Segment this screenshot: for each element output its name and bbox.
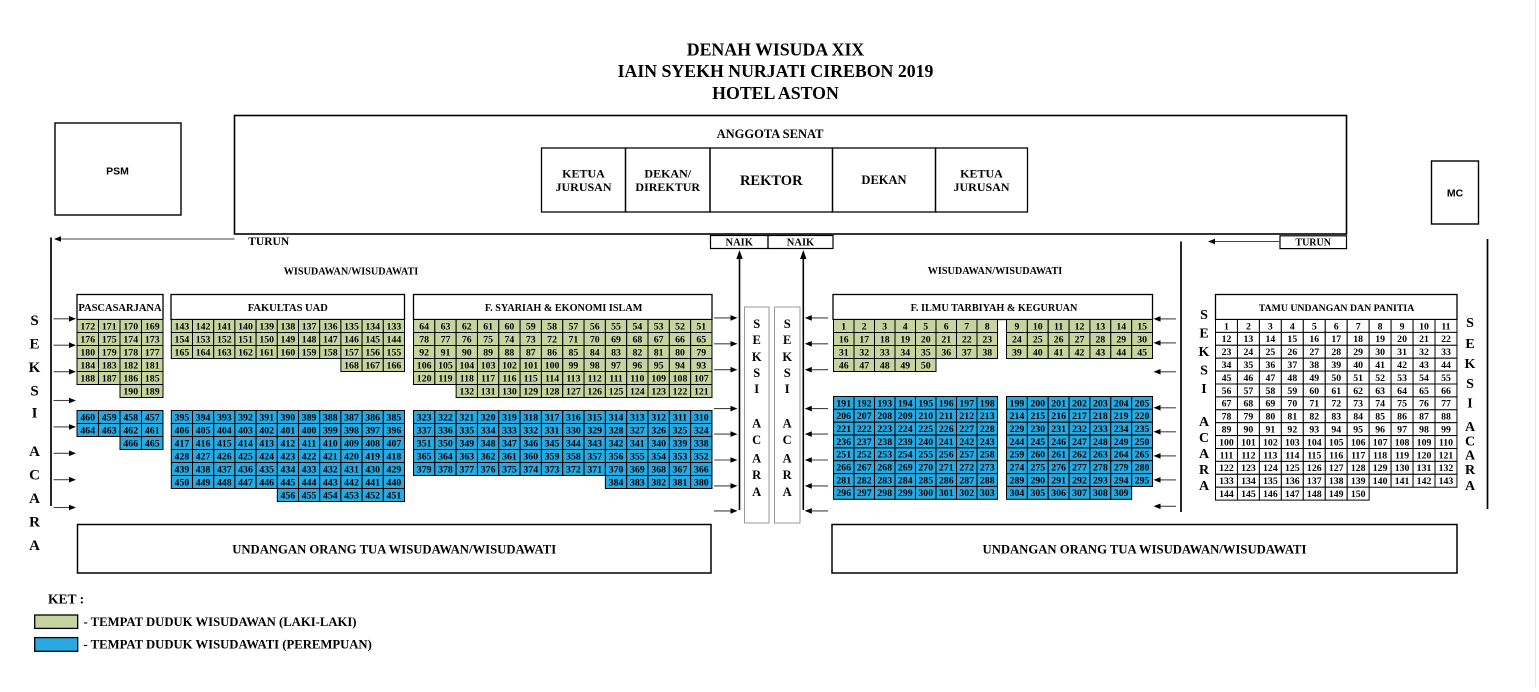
svg-text:10: 10 (1033, 321, 1043, 332)
svg-text:437: 437 (217, 464, 232, 475)
svg-text:252: 252 (857, 450, 872, 461)
svg-text:115: 115 (524, 373, 538, 384)
svg-text:199: 199 (1010, 398, 1025, 409)
svg-text:258: 258 (980, 450, 995, 461)
svg-text:428: 428 (175, 451, 190, 462)
svg-text:131: 131 (481, 386, 496, 397)
svg-text:10: 10 (1419, 321, 1429, 332)
svg-text:22: 22 (1441, 334, 1451, 345)
svg-text:91: 91 (441, 347, 451, 358)
svg-text:153: 153 (196, 334, 211, 345)
svg-text:7: 7 (964, 321, 969, 332)
svg-text:209: 209 (898, 411, 913, 422)
svg-text:5: 5 (923, 321, 928, 332)
svg-text:146: 146 (1263, 489, 1278, 500)
svg-text:402: 402 (259, 425, 274, 436)
svg-text:349: 349 (459, 438, 474, 449)
svg-text:13: 13 (1244, 334, 1254, 345)
svg-text:106: 106 (1351, 437, 1366, 448)
svg-text:64: 64 (1397, 386, 1407, 397)
svg-text:TAMU UNDANGAN DAN PANITIA: TAMU UNDANGAN DAN PANITIA (1259, 303, 1415, 314)
svg-text:43: 43 (1095, 347, 1105, 358)
svg-text:116: 116 (502, 373, 516, 384)
svg-text:447: 447 (238, 477, 253, 488)
svg-text:255: 255 (918, 450, 933, 461)
svg-text:76: 76 (1419, 399, 1429, 410)
svg-text:232: 232 (1072, 424, 1087, 435)
svg-text:E: E (783, 333, 791, 347)
svg-text:40: 40 (1033, 347, 1043, 358)
svg-text:359: 359 (545, 451, 560, 462)
svg-text:105: 105 (438, 360, 453, 371)
svg-text:410: 410 (323, 438, 338, 449)
svg-text:S: S (784, 317, 791, 331)
svg-text:399: 399 (323, 425, 338, 436)
svg-text:276: 276 (1051, 463, 1066, 474)
svg-text:A: A (1199, 415, 1210, 430)
svg-text:314: 314 (609, 412, 624, 423)
svg-text:266: 266 (836, 463, 851, 474)
svg-text:58: 58 (547, 321, 557, 332)
svg-text:429: 429 (387, 464, 402, 475)
svg-text:S: S (30, 384, 38, 400)
svg-text:125: 125 (1285, 463, 1300, 474)
svg-text:295: 295 (1135, 475, 1150, 486)
svg-text:7: 7 (1356, 321, 1361, 332)
svg-text:A: A (783, 485, 792, 499)
svg-text:47: 47 (1265, 373, 1275, 384)
svg-text:250: 250 (1135, 437, 1150, 448)
svg-text:DEKAN/: DEKAN/ (644, 167, 691, 181)
svg-text:322: 322 (438, 412, 453, 423)
svg-text:37: 37 (962, 347, 972, 358)
svg-text:19: 19 (1375, 334, 1385, 345)
svg-text:448: 448 (217, 477, 232, 488)
svg-text:420: 420 (344, 451, 359, 462)
svg-text:ANGGOTA SENAT: ANGGOTA SENAT (717, 127, 825, 141)
svg-text:A: A (752, 451, 761, 465)
svg-text:66: 66 (1441, 386, 1451, 397)
svg-text:316: 316 (566, 412, 581, 423)
svg-text:426: 426 (217, 451, 232, 462)
svg-text:110: 110 (630, 373, 644, 384)
svg-text:195: 195 (918, 398, 933, 409)
svg-text:R: R (29, 515, 40, 531)
svg-text:PSM: PSM (106, 166, 129, 178)
svg-text:53: 53 (1397, 373, 1407, 384)
svg-text:215: 215 (1030, 411, 1045, 422)
svg-text:293: 293 (1093, 475, 1108, 486)
svg-text:203: 203 (1093, 398, 1108, 409)
svg-text:310: 310 (694, 412, 709, 423)
svg-text:118: 118 (1373, 450, 1387, 461)
svg-text:297: 297 (857, 488, 872, 499)
svg-text:A: A (1465, 420, 1476, 435)
svg-text:S: S (1466, 316, 1474, 331)
svg-text:157: 157 (344, 347, 359, 358)
svg-text:192: 192 (857, 398, 872, 409)
svg-text:251: 251 (836, 450, 851, 461)
svg-text:110: 110 (1439, 437, 1453, 448)
svg-text:370: 370 (609, 464, 624, 475)
svg-text:380: 380 (694, 477, 709, 488)
svg-text:102: 102 (502, 360, 517, 371)
svg-text:127: 127 (1329, 463, 1344, 474)
svg-text:68: 68 (632, 334, 642, 345)
svg-text:22: 22 (962, 334, 972, 345)
svg-text:344: 344 (566, 438, 581, 449)
svg-text:R: R (752, 468, 762, 482)
svg-text:103: 103 (1285, 437, 1300, 448)
svg-text:235: 235 (1135, 424, 1150, 435)
svg-text:231: 231 (1051, 424, 1066, 435)
svg-text:105: 105 (1329, 437, 1344, 448)
svg-text:132: 132 (459, 386, 474, 397)
svg-text:15: 15 (1137, 321, 1147, 332)
svg-text:393: 393 (217, 412, 232, 423)
svg-text:76: 76 (462, 334, 472, 345)
svg-text:119: 119 (438, 373, 452, 384)
svg-text:67: 67 (654, 334, 664, 345)
svg-text:265: 265 (1135, 450, 1150, 461)
svg-text:175: 175 (102, 334, 117, 345)
svg-text:386: 386 (365, 412, 380, 423)
svg-text:98: 98 (1419, 424, 1429, 435)
svg-text:191: 191 (836, 398, 851, 409)
svg-text:39: 39 (1012, 347, 1022, 358)
svg-text:93: 93 (1309, 424, 1319, 435)
svg-text:59: 59 (526, 321, 536, 332)
svg-text:281: 281 (836, 475, 851, 486)
svg-text:166: 166 (387, 360, 402, 371)
svg-text:294: 294 (1114, 475, 1129, 486)
svg-text:83: 83 (1331, 412, 1341, 423)
svg-text:95: 95 (1353, 424, 1363, 435)
svg-text:20: 20 (1397, 334, 1407, 345)
svg-text:JURUSAN: JURUSAN (555, 180, 611, 194)
svg-text:324: 324 (694, 425, 709, 436)
svg-text:423: 423 (281, 451, 296, 462)
svg-text:283: 283 (877, 475, 892, 486)
svg-text:221: 221 (836, 424, 851, 435)
svg-text:R: R (783, 468, 793, 482)
svg-text:411: 411 (302, 438, 316, 449)
svg-text:24: 24 (1012, 334, 1022, 345)
svg-text:434: 434 (281, 464, 296, 475)
svg-text:97: 97 (1397, 424, 1407, 435)
svg-text:337: 337 (417, 425, 432, 436)
svg-text:172: 172 (80, 321, 95, 332)
svg-text:211: 211 (939, 411, 953, 422)
svg-text:113: 113 (566, 373, 580, 384)
svg-text:127: 127 (566, 386, 581, 397)
svg-text:S: S (1200, 308, 1208, 323)
svg-text:32: 32 (859, 347, 869, 358)
svg-text:68: 68 (1244, 399, 1254, 410)
svg-text:I: I (785, 382, 790, 396)
svg-text:375: 375 (502, 464, 517, 475)
svg-text:I: I (32, 406, 38, 422)
svg-text:75: 75 (1397, 399, 1407, 410)
svg-text:198: 198 (980, 398, 995, 409)
svg-text:119: 119 (1395, 450, 1409, 461)
svg-text:31: 31 (1397, 347, 1407, 358)
svg-text:E: E (1465, 337, 1474, 352)
svg-text:120: 120 (417, 373, 432, 384)
svg-text:308: 308 (1093, 488, 1108, 499)
svg-text:49: 49 (1309, 373, 1319, 384)
svg-text:128: 128 (545, 386, 560, 397)
svg-text:77: 77 (1441, 399, 1451, 410)
svg-text:14: 14 (1265, 334, 1275, 345)
svg-text:321: 321 (459, 412, 474, 423)
svg-text:19: 19 (900, 334, 910, 345)
svg-text:418: 418 (387, 451, 402, 462)
svg-text:451: 451 (387, 490, 402, 501)
svg-text:238: 238 (877, 437, 892, 448)
svg-text:A: A (29, 491, 40, 507)
svg-text:12: 12 (1222, 334, 1232, 345)
svg-text:6: 6 (944, 321, 949, 332)
svg-text:51: 51 (1353, 373, 1363, 384)
svg-text:389: 389 (302, 412, 317, 423)
svg-text:144: 144 (387, 334, 402, 345)
svg-text:121: 121 (694, 386, 709, 397)
svg-text:45: 45 (1222, 373, 1232, 384)
svg-text:366: 366 (694, 464, 709, 475)
svg-text:413: 413 (259, 438, 274, 449)
svg-text:427: 427 (196, 451, 211, 462)
svg-text:160: 160 (281, 347, 296, 358)
svg-text:116: 116 (1329, 450, 1343, 461)
svg-text:100: 100 (1219, 437, 1234, 448)
svg-text:54: 54 (1419, 373, 1429, 384)
svg-text:189: 189 (145, 386, 160, 397)
svg-text:I: I (754, 382, 759, 396)
svg-text:120: 120 (1417, 450, 1432, 461)
svg-text:326: 326 (651, 425, 666, 436)
svg-text:56: 56 (590, 321, 600, 332)
svg-text:267: 267 (857, 463, 872, 474)
svg-text:41: 41 (1375, 360, 1385, 371)
svg-text:185: 185 (145, 373, 160, 384)
svg-text:KET :: KET : (48, 592, 84, 607)
svg-text:178: 178 (123, 347, 138, 358)
svg-text:273: 273 (980, 463, 995, 474)
svg-text:312: 312 (651, 412, 666, 423)
svg-text:336: 336 (438, 425, 453, 436)
svg-text:383: 383 (630, 477, 645, 488)
svg-text:70: 70 (590, 334, 600, 345)
svg-text:96: 96 (1375, 424, 1385, 435)
svg-text:104: 104 (459, 360, 474, 371)
svg-text:123: 123 (651, 386, 666, 397)
svg-text:313: 313 (630, 412, 645, 423)
svg-text:8: 8 (985, 321, 990, 332)
svg-text:102: 102 (1263, 437, 1278, 448)
svg-text:223: 223 (877, 424, 892, 435)
svg-text:18: 18 (880, 334, 890, 345)
svg-text:218: 218 (1093, 411, 1108, 422)
svg-text:15: 15 (1287, 334, 1297, 345)
svg-text:K: K (1199, 345, 1210, 360)
svg-text:269: 269 (898, 463, 913, 474)
svg-text:57: 57 (569, 321, 579, 332)
svg-text:291: 291 (1051, 475, 1066, 486)
svg-text:368: 368 (651, 464, 666, 475)
svg-text:- TEMPAT DUDUK WISUDAWATI (PER: - TEMPAT DUDUK WISUDAWATI (PEREMPUAN) (84, 638, 372, 652)
svg-text:UNDANGAN ORANG TUA WISUDAWAN/W: UNDANGAN ORANG TUA WISUDAWAN/WISUDAWATI (983, 542, 1307, 556)
svg-text:73: 73 (526, 334, 536, 345)
svg-text:K: K (29, 360, 41, 376)
svg-text:28: 28 (1331, 347, 1341, 358)
svg-text:42: 42 (1397, 360, 1407, 371)
svg-text:331: 331 (545, 425, 560, 436)
svg-text:89: 89 (1222, 424, 1232, 435)
svg-text:264: 264 (1114, 450, 1129, 461)
svg-text:204: 204 (1114, 398, 1129, 409)
svg-text:66: 66 (675, 334, 685, 345)
svg-text:461: 461 (145, 425, 160, 436)
svg-text:280: 280 (1135, 463, 1150, 474)
svg-text:57: 57 (1244, 386, 1254, 397)
svg-text:78: 78 (1222, 412, 1232, 423)
svg-text:145: 145 (365, 334, 380, 345)
svg-text:136: 136 (1285, 476, 1300, 487)
svg-text:373: 373 (545, 464, 560, 475)
svg-text:456: 456 (281, 490, 296, 501)
svg-text:352: 352 (694, 451, 709, 462)
svg-text:155: 155 (387, 347, 402, 358)
svg-text:257: 257 (959, 450, 974, 461)
svg-text:25: 25 (1265, 347, 1275, 358)
svg-text:26: 26 (1054, 334, 1064, 345)
svg-text:282: 282 (857, 475, 872, 486)
svg-text:111: 111 (609, 373, 623, 384)
svg-text:30: 30 (1137, 334, 1147, 345)
svg-text:346: 346 (523, 438, 538, 449)
svg-text:132: 132 (1439, 463, 1454, 474)
svg-text:425: 425 (238, 451, 253, 462)
svg-text:149: 149 (281, 334, 296, 345)
svg-text:177: 177 (145, 347, 160, 358)
svg-text:190: 190 (123, 386, 138, 397)
svg-text:137: 137 (1307, 476, 1322, 487)
svg-text:317: 317 (545, 412, 560, 423)
svg-text:243: 243 (980, 437, 995, 448)
svg-text:440: 440 (387, 477, 402, 488)
svg-text:33: 33 (880, 347, 890, 358)
svg-text:417: 417 (175, 438, 190, 449)
svg-text:210: 210 (918, 411, 933, 422)
svg-text:244: 244 (1010, 437, 1025, 448)
svg-text:67: 67 (1222, 399, 1232, 410)
svg-text:379: 379 (417, 464, 432, 475)
svg-text:C: C (783, 433, 792, 447)
svg-text:446: 446 (259, 477, 274, 488)
svg-text:404: 404 (217, 425, 232, 436)
svg-text:213: 213 (980, 411, 995, 422)
svg-text:304: 304 (1010, 488, 1025, 499)
svg-text:241: 241 (939, 437, 954, 448)
svg-text:441: 441 (365, 477, 380, 488)
svg-text:PASCASARJANA: PASCASARJANA (78, 303, 162, 314)
svg-text:26: 26 (1287, 347, 1297, 358)
svg-text:340: 340 (651, 438, 666, 449)
svg-text:141: 141 (217, 321, 232, 332)
svg-text:319: 319 (502, 412, 517, 423)
svg-text:TURUN: TURUN (248, 236, 290, 248)
svg-text:F. ILMU TARBIYAH & KEGURUAN: F. ILMU TARBIYAH & KEGURUAN (911, 303, 1078, 314)
svg-text:82: 82 (1309, 412, 1319, 423)
svg-text:323: 323 (417, 412, 432, 423)
svg-text:187: 187 (102, 373, 117, 384)
svg-text:60: 60 (505, 321, 515, 332)
svg-text:63: 63 (1375, 386, 1385, 397)
svg-text:385: 385 (387, 412, 402, 423)
svg-text:216: 216 (1051, 411, 1066, 422)
svg-text:114: 114 (545, 373, 559, 384)
svg-text:4: 4 (903, 321, 908, 332)
svg-text:350: 350 (438, 438, 453, 449)
svg-text:228: 228 (980, 424, 995, 435)
svg-text:242: 242 (959, 437, 974, 448)
svg-text:284: 284 (898, 475, 913, 486)
svg-text:C: C (1465, 434, 1475, 449)
svg-text:435: 435 (259, 464, 274, 475)
svg-text:443: 443 (323, 477, 338, 488)
svg-text:465: 465 (145, 438, 160, 449)
svg-text:23: 23 (1222, 347, 1232, 358)
svg-text:93: 93 (696, 360, 706, 371)
svg-text:61: 61 (483, 321, 493, 332)
svg-text:106: 106 (417, 360, 432, 371)
svg-text:200: 200 (1030, 398, 1045, 409)
svg-text:A: A (752, 417, 761, 431)
svg-text:79: 79 (1244, 412, 1254, 423)
svg-text:121: 121 (1439, 450, 1454, 461)
svg-text:141: 141 (1395, 476, 1410, 487)
svg-text:421: 421 (323, 451, 338, 462)
svg-text:65: 65 (696, 334, 706, 345)
svg-text:E: E (1199, 326, 1208, 341)
svg-text:193: 193 (877, 398, 892, 409)
svg-text:S: S (30, 313, 38, 329)
svg-text:51: 51 (696, 321, 706, 332)
svg-text:254: 254 (898, 450, 913, 461)
svg-text:271: 271 (939, 463, 954, 474)
svg-text:81: 81 (1287, 412, 1297, 423)
svg-text:256: 256 (939, 450, 954, 461)
svg-text:129: 129 (1373, 463, 1388, 474)
svg-text:24: 24 (1244, 347, 1254, 358)
svg-text:71: 71 (1309, 399, 1319, 410)
svg-text:89: 89 (483, 347, 493, 358)
svg-text:287: 287 (959, 475, 974, 486)
svg-text:55: 55 (611, 321, 621, 332)
svg-text:86: 86 (547, 347, 557, 358)
svg-text:207: 207 (857, 411, 872, 422)
svg-text:124: 124 (1263, 463, 1278, 474)
svg-text:80: 80 (1265, 412, 1275, 423)
svg-text:UNDANGAN ORANG TUA WISUDAWAN/W: UNDANGAN ORANG TUA WISUDAWAN/WISUDAWATI (232, 542, 556, 556)
svg-text:21: 21 (941, 334, 951, 345)
svg-text:37: 37 (1287, 360, 1297, 371)
svg-text:2: 2 (862, 321, 867, 332)
svg-text:63: 63 (441, 321, 451, 332)
svg-text:117: 117 (481, 373, 495, 384)
svg-text:458: 458 (123, 412, 138, 423)
